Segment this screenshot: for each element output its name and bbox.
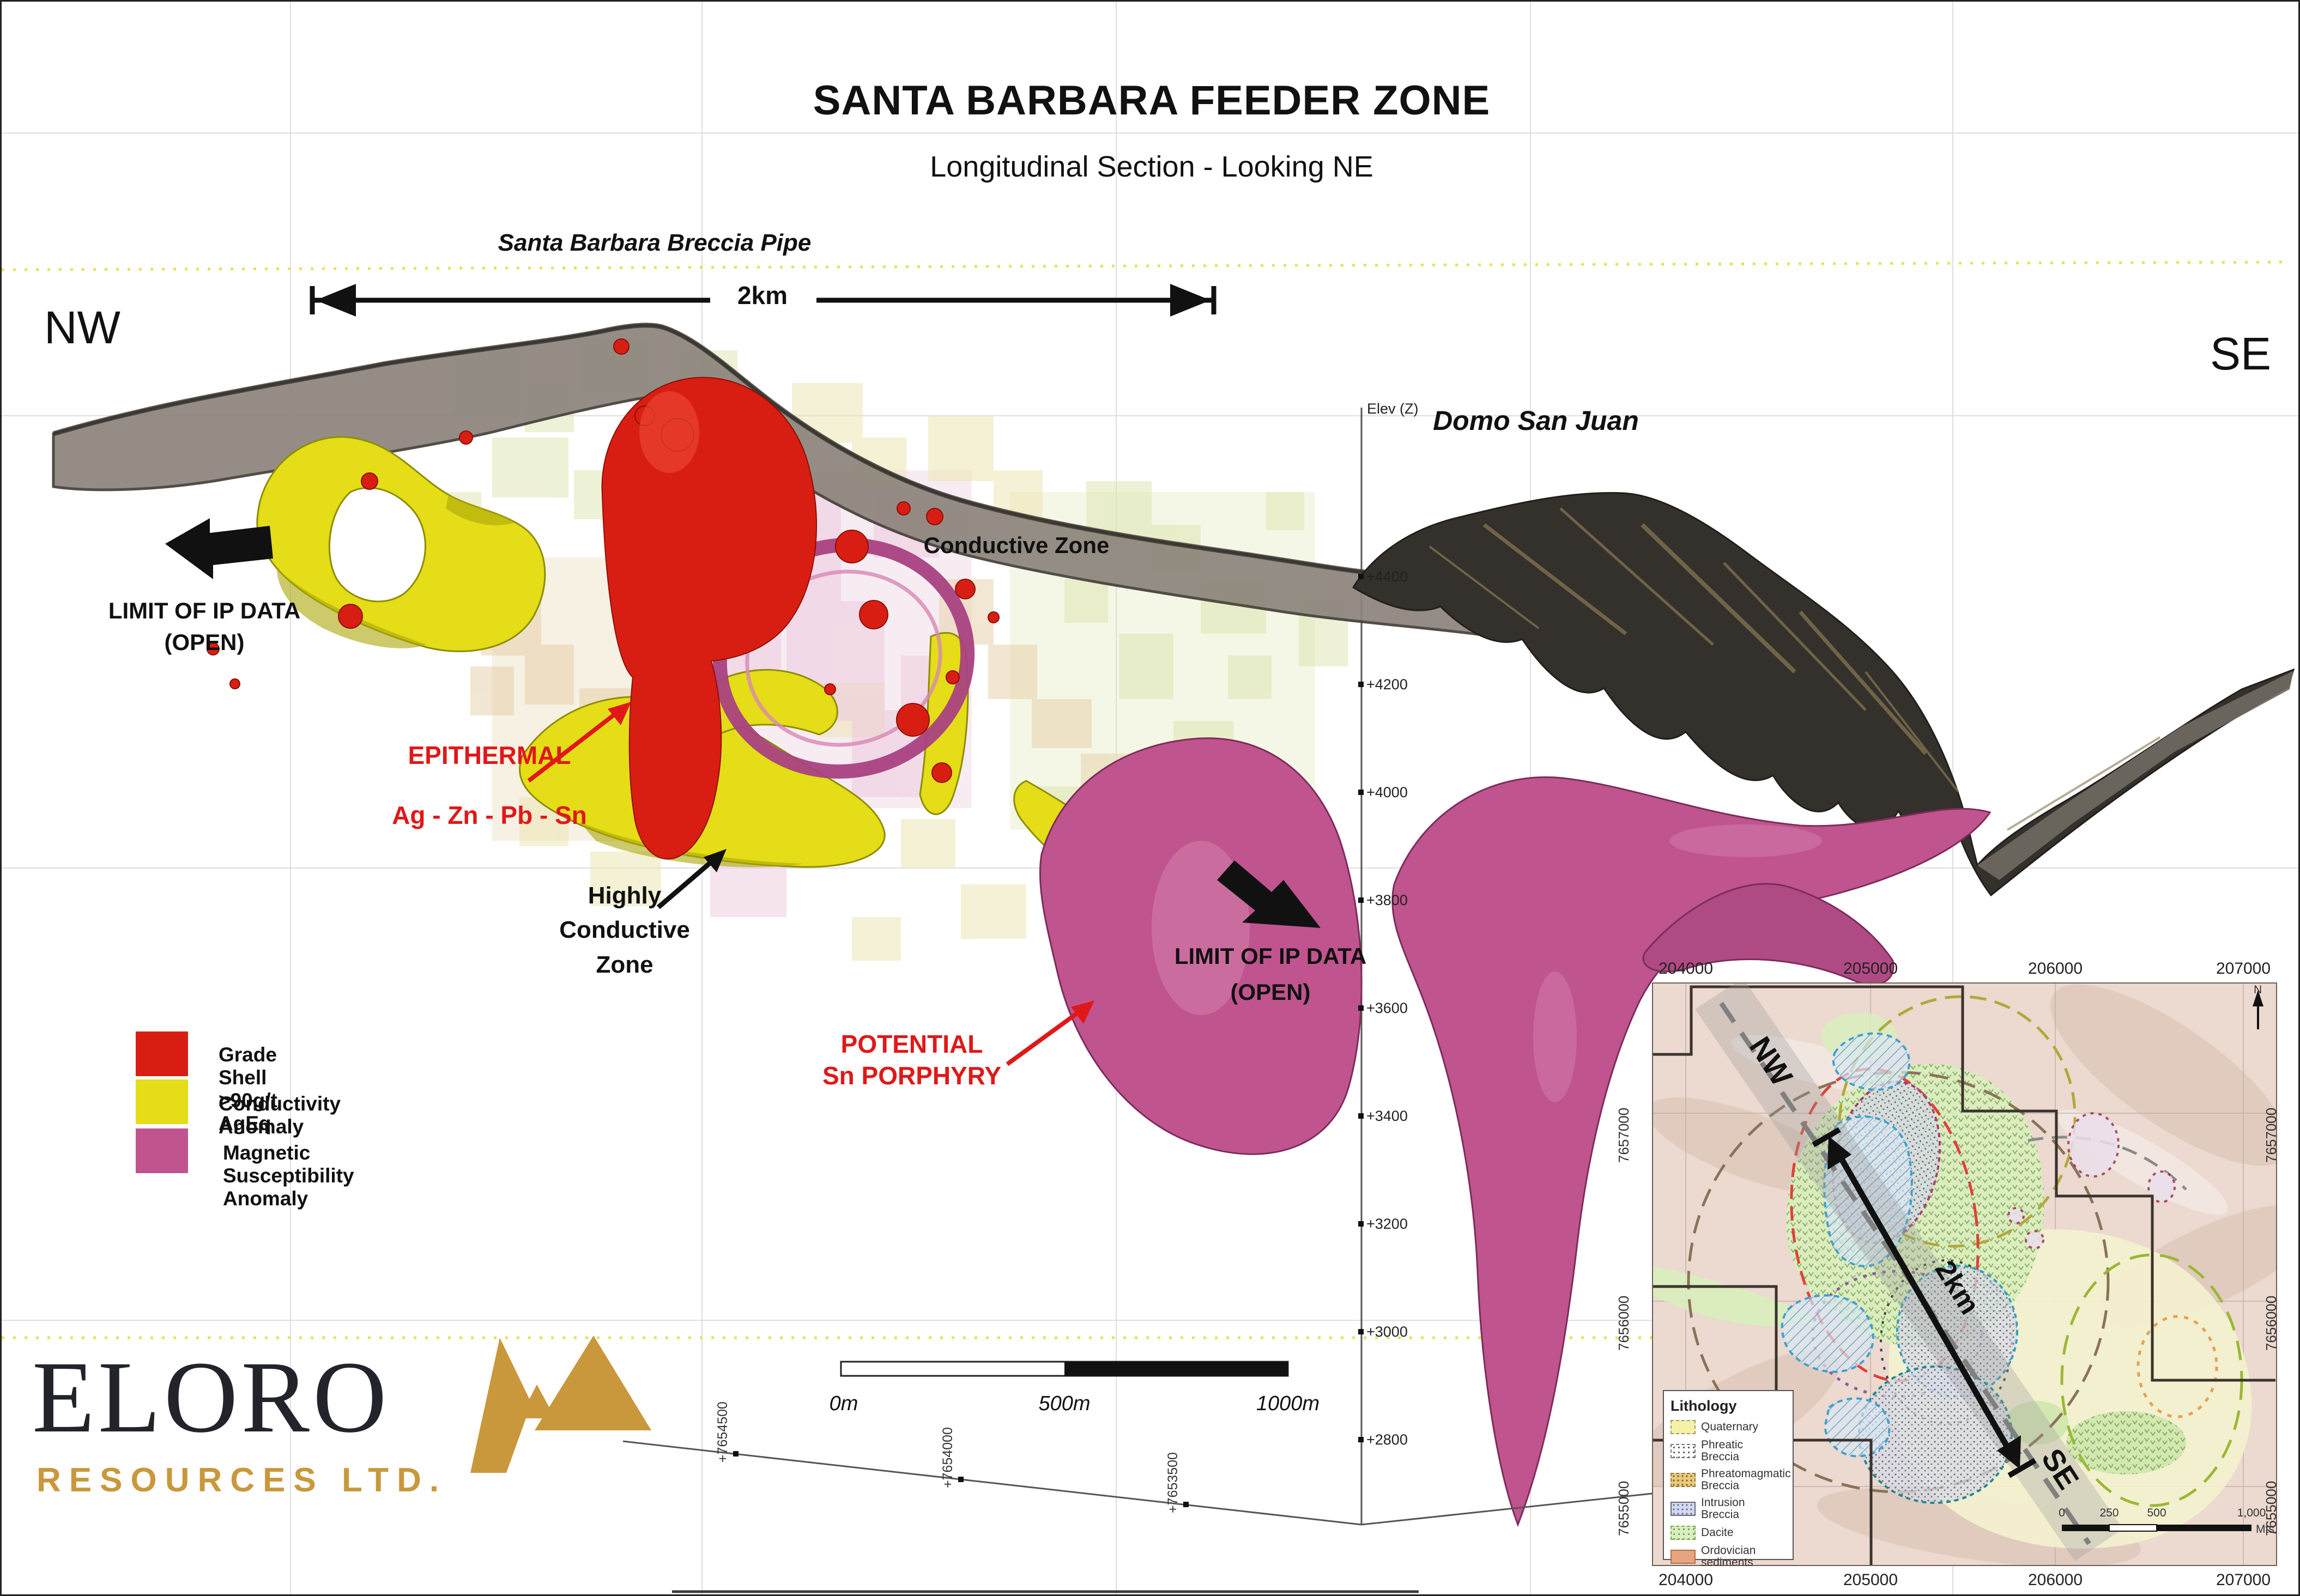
lithology-item: PhreaticBreccia	[1670, 1439, 1786, 1463]
lithology-item: IntrusionBreccia	[1670, 1497, 1786, 1521]
easting-top: 206000	[2028, 960, 2083, 978]
conductive-zone-label: Conductive Zone	[924, 531, 1110, 560]
easting-top: 204000	[1659, 960, 1713, 978]
grade-shell-highlight	[639, 391, 699, 473]
elev-tick: +3000	[1366, 1324, 1408, 1340]
legend-swatch-grade-shell	[136, 1031, 188, 1076]
northing-tick: +7654500	[715, 1401, 731, 1463]
elev-tick: +3200	[1366, 1216, 1408, 1233]
legend-swatch-conductivity	[136, 1079, 188, 1124]
domo-san-juan-label: Domo San Juan	[1433, 405, 1639, 436]
scalebar-500m: 500m	[1038, 1392, 1090, 1416]
legend-swatch-magnetic	[136, 1128, 188, 1173]
epithermal-line1: EPITHERMAL	[408, 741, 571, 770]
northing-left: 7657000	[1615, 1108, 1632, 1163]
elev-tick: +3400	[1366, 1108, 1408, 1125]
eloro-logo-mark	[470, 1336, 651, 1473]
inset-scale-bar	[2062, 1525, 2251, 1531]
epithermal-line2: Ag - Zn - Pb - Sn	[392, 800, 587, 830]
elevation-axis-title: Elev (Z)	[1367, 400, 1419, 417]
easting-bottom: 207000	[2216, 1571, 2271, 1589]
easting-bottom: 205000	[1843, 1571, 1898, 1589]
lithology-title: Lithology	[1670, 1398, 1786, 1415]
highly-conductive-line3: Zone	[596, 950, 653, 980]
northing-tick: +7654000	[940, 1427, 956, 1488]
breccia-pipe-span-label: 2km	[729, 281, 796, 310]
easting-top: 207000	[2216, 960, 2271, 978]
lithology-legend: Lithology Quaternary PhreaticBreccia Phr…	[1663, 1390, 1794, 1560]
page-subtitle: Longitudinal Section - Looking NE	[930, 150, 1373, 184]
lithology-label: Phreatomagmatic	[1701, 1468, 1791, 1480]
limit-ip-right-line2: (OPEN)	[1231, 978, 1311, 1007]
main-scale-bar	[841, 1362, 1288, 1376]
lithology-label2: sediments	[1701, 1557, 1756, 1569]
limit-ip-right-line1: LIMIT OF IP DATA	[1175, 942, 1366, 971]
lithology-label: Dacite	[1701, 1527, 1734, 1539]
logo-subtitle: RESOURCES LTD.	[37, 1461, 447, 1500]
easting-bottom: 206000	[2028, 1571, 2083, 1589]
elev-tick: +4000	[1366, 784, 1408, 801]
lithology-label: Intrusion	[1701, 1497, 1745, 1509]
lithology-item: Quaternary	[1670, 1420, 1786, 1434]
inset-scale-250: 250	[2099, 1507, 2119, 1520]
inset-scale-0: 0	[2059, 1507, 2065, 1520]
inset-scale-1000: 1,000	[2237, 1507, 2266, 1520]
lithology-item: Ordoviciansediments	[1670, 1545, 1786, 1569]
lithology-label2: Breccia	[1701, 1451, 1743, 1463]
easting-top: 205000	[1843, 960, 1898, 978]
lithology-item: PhreatomagmaticBreccia	[1670, 1468, 1786, 1492]
inset-scale-unit: Mts.	[2256, 1523, 2278, 1536]
northing-tick: +7653500	[1165, 1452, 1181, 1513]
northing-right: 7657000	[2263, 1108, 2280, 1163]
highly-conductive-line2: Conductive	[559, 915, 690, 945]
lithology-swatch-ordovician	[1670, 1550, 1696, 1564]
scalebar-1000m: 1000m	[1256, 1392, 1320, 1416]
northing-right: 7656000	[2263, 1296, 2280, 1351]
inset-north-label: N	[2254, 984, 2262, 997]
lithology-swatch-intrusion	[1670, 1502, 1696, 1516]
elev-tick: +4200	[1366, 676, 1408, 693]
inset-scale-500: 500	[2147, 1507, 2166, 1520]
breccia-pipe-label: Santa Barbara Breccia Pipe	[498, 229, 812, 257]
lithology-swatch-quaternary	[1670, 1420, 1696, 1434]
inset-map: NW 2km SE N 204000 205000 206000 207000 …	[1652, 982, 2277, 1566]
potential-line1: POTENTIAL	[841, 1029, 983, 1059]
elev-tick: +2800	[1366, 1431, 1408, 1448]
lithology-swatch-dacite	[1670, 1526, 1696, 1540]
elev-tick: +4400	[1366, 568, 1408, 585]
legend-label-magnetic: Magnetic Susceptibility Anomaly	[223, 1142, 354, 1210]
nw-label: NW	[44, 301, 120, 354]
northing-left: 7656000	[1615, 1296, 1632, 1351]
limit-ip-left-line2: (OPEN)	[165, 628, 245, 657]
figure-root: SANTA BARBARA FEEDER ZONE Longitudinal S…	[0, 0, 2300, 1596]
page-title: SANTA BARBARA FEEDER ZONE	[813, 77, 1490, 124]
se-label: SE	[2210, 327, 2271, 380]
scalebar-0m: 0m	[830, 1392, 858, 1416]
lithology-label2: Breccia	[1701, 1509, 1745, 1521]
domo-tail-light	[1977, 671, 2293, 880]
lithology-swatch-phreatic	[1670, 1444, 1696, 1458]
elev-tick: +3800	[1366, 892, 1408, 909]
lithology-label: Phreatic	[1701, 1439, 1743, 1451]
lithology-label2: Breccia	[1701, 1480, 1791, 1492]
easting-bottom: 204000	[1659, 1571, 1713, 1589]
lithology-label: Quaternary	[1701, 1421, 1758, 1433]
highly-conductive-line1: Highly	[588, 881, 661, 911]
lithology-item: Dacite	[1670, 1526, 1786, 1540]
logo-wordmark: ELORO	[32, 1338, 390, 1456]
lithology-label: Ordovician	[1701, 1545, 1756, 1557]
elev-tick: +3600	[1366, 1000, 1408, 1017]
lithology-swatch-phreatomagmatic	[1670, 1473, 1696, 1487]
northing-left: 7655000	[1615, 1481, 1632, 1536]
limit-ip-left-line1: LIMIT OF IP DATA	[108, 597, 300, 626]
legend-label-conductivity: Conductivity Anomaly	[219, 1093, 341, 1138]
potential-line2: Sn PORPHYRY	[822, 1061, 1001, 1090]
